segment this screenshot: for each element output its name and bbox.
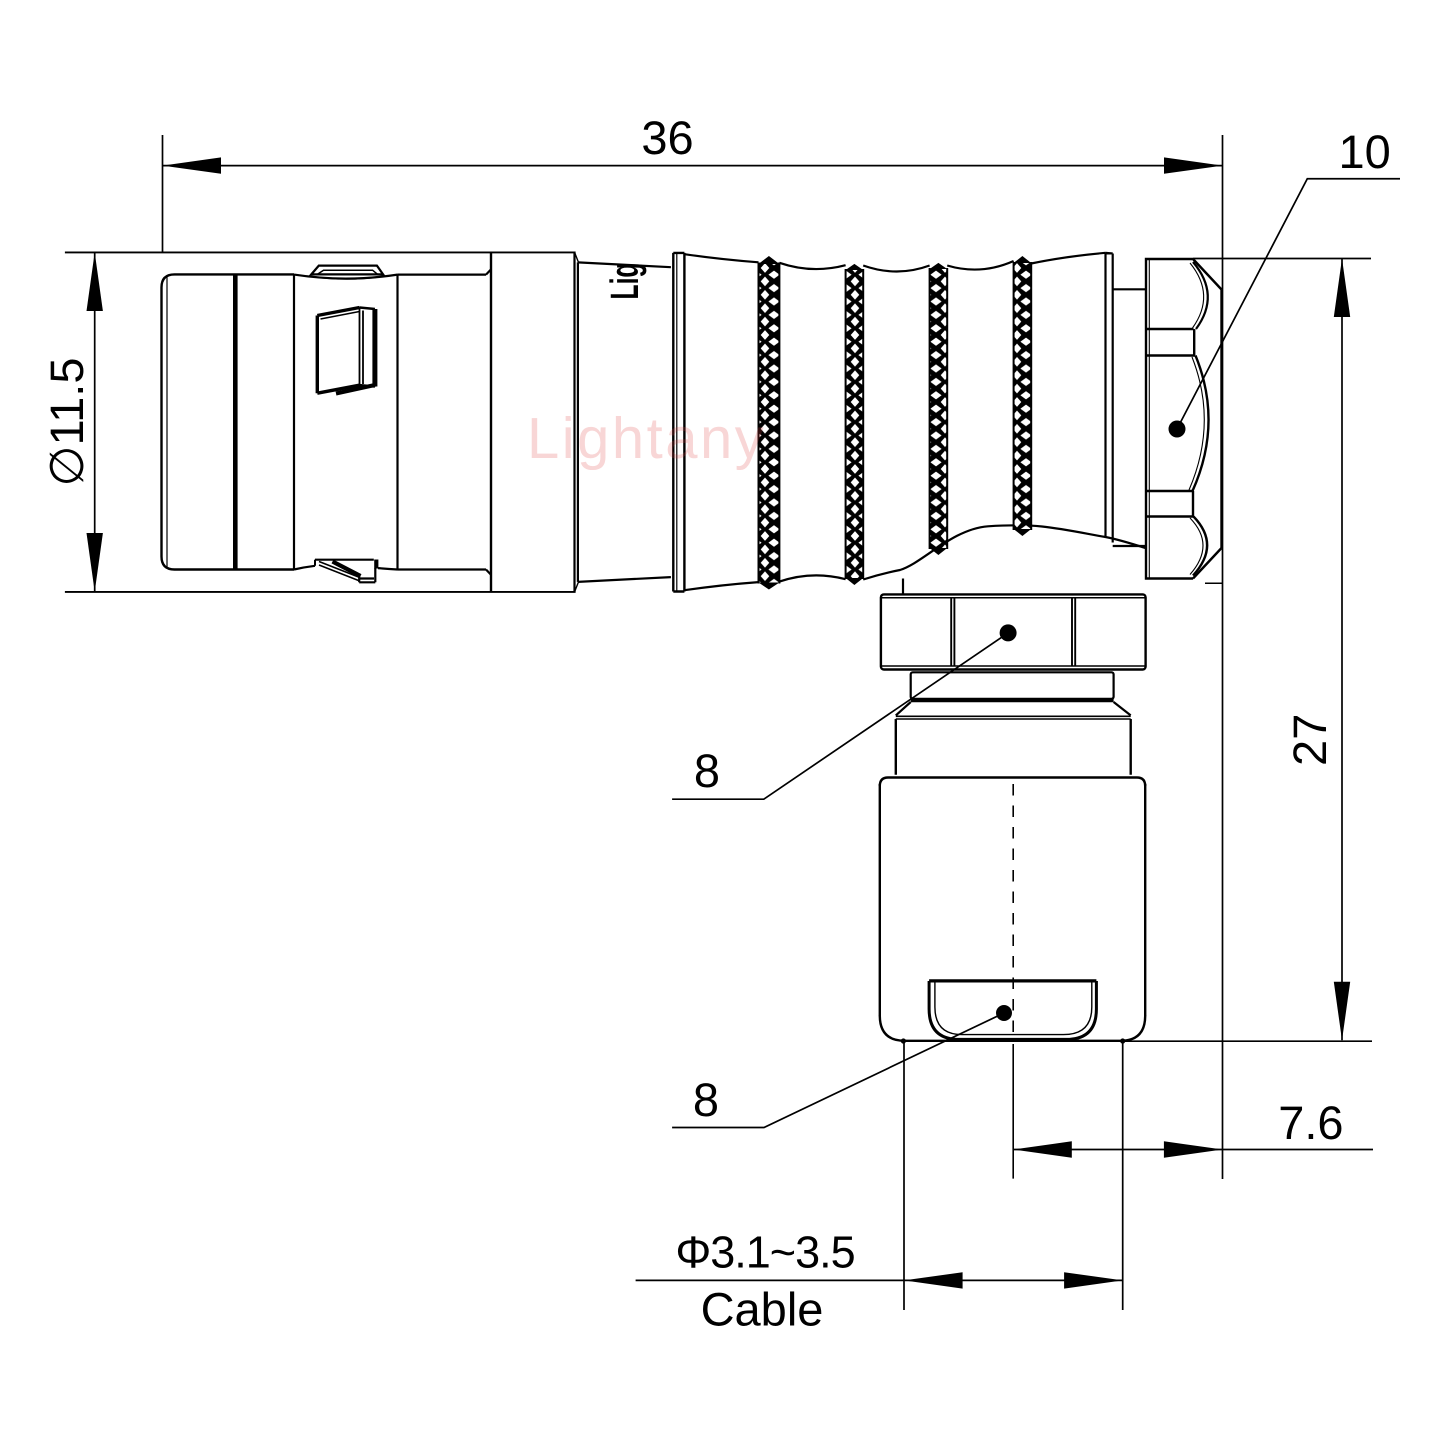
svg-text:36: 36 [641,111,693,164]
svg-text:8: 8 [693,1073,719,1126]
svg-text:Φ3.1~3.5: Φ3.1~3.5 [675,1227,854,1278]
svg-text:Lig: Lig [604,263,648,300]
svg-text:Cable: Cable [701,1283,824,1336]
svg-text:10: 10 [1338,125,1390,178]
svg-text:8: 8 [694,744,720,797]
svg-text:27: 27 [1283,714,1336,766]
svg-text:∅11.5: ∅11.5 [40,358,93,487]
svg-text:7.6: 7.6 [1278,1096,1343,1149]
